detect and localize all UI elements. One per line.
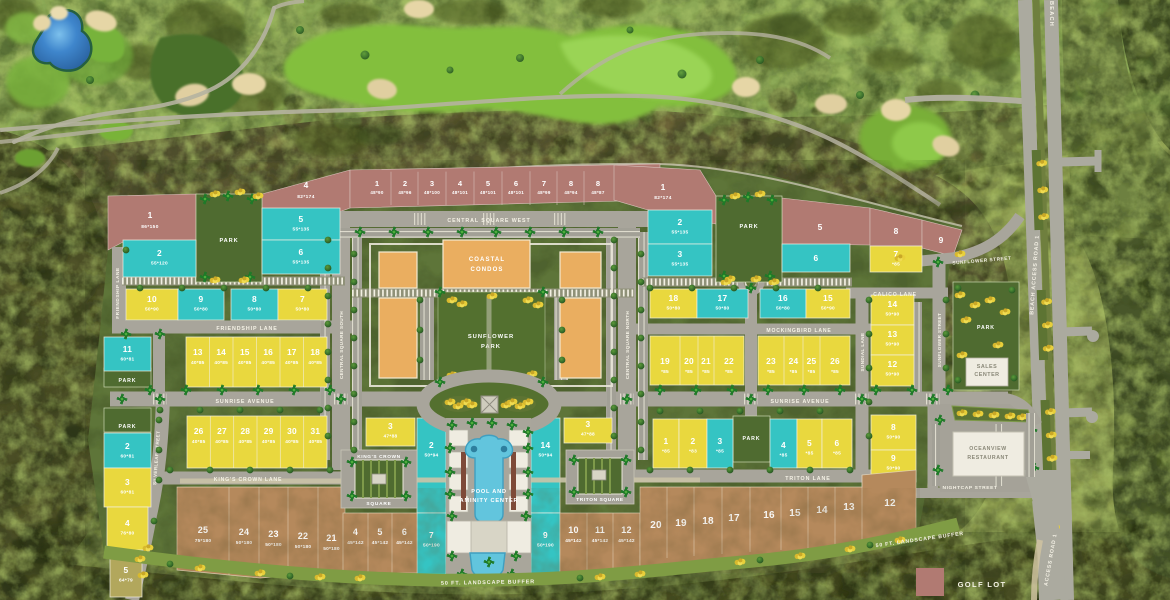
- svg-text:16: 16: [263, 347, 273, 357]
- svg-text:7: 7: [542, 179, 546, 188]
- svg-text:13: 13: [888, 329, 898, 339]
- svg-text:50*90: 50*90: [886, 435, 900, 441]
- svg-text:40*85: 40*85: [192, 439, 206, 445]
- svg-text:PARK: PARK: [119, 378, 137, 384]
- svg-text:17: 17: [287, 347, 297, 357]
- svg-text:8: 8: [891, 422, 896, 432]
- svg-text:3: 3: [125, 477, 130, 487]
- svg-text:*85: *85: [805, 451, 813, 457]
- svg-text:50*90: 50*90: [821, 306, 835, 312]
- svg-text:RESTAURANT: RESTAURANT: [967, 455, 1009, 461]
- svg-text:27: 27: [217, 426, 227, 436]
- svg-text:55*135: 55*135: [671, 262, 688, 268]
- svg-text:60*81: 60*81: [120, 490, 134, 496]
- svg-text:6: 6: [814, 253, 819, 263]
- svg-text:50*90: 50*90: [145, 307, 159, 313]
- svg-text:*85: *85: [685, 369, 693, 375]
- svg-text:PARK: PARK: [739, 224, 758, 230]
- svg-text:NIGHTCAP STREET: NIGHTCAP STREET: [942, 485, 997, 491]
- svg-text:*85: *85: [831, 369, 839, 375]
- svg-text:CENTRAL SQUARE NORTH: CENTRAL SQUARE NORTH: [625, 311, 630, 380]
- svg-text:40*85: 40*85: [309, 439, 323, 445]
- svg-text:55*135: 55*135: [671, 230, 688, 236]
- svg-text:1: 1: [661, 182, 666, 192]
- svg-text:28: 28: [240, 426, 250, 436]
- svg-text:50*80: 50*80: [295, 307, 309, 313]
- svg-text:3: 3: [430, 179, 434, 188]
- svg-text:CONDOS: CONDOS: [471, 267, 504, 273]
- svg-text:76*80: 76*80: [120, 531, 134, 537]
- svg-text:82*174: 82*174: [654, 195, 672, 201]
- svg-text:CALICO LANE: CALICO LANE: [873, 292, 917, 298]
- svg-text:AMINITY CENTER: AMINITY CENTER: [460, 498, 519, 504]
- svg-text:*85: *85: [833, 451, 841, 457]
- svg-text:8: 8: [569, 179, 573, 188]
- svg-text:26: 26: [830, 356, 840, 366]
- svg-text:*85: *85: [716, 449, 724, 455]
- svg-text:48*90: 48*90: [370, 190, 383, 195]
- svg-text:2: 2: [157, 248, 162, 258]
- svg-text:47*88: 47*88: [581, 432, 595, 438]
- svg-text:PARK: PARK: [119, 424, 137, 430]
- svg-text:13: 13: [193, 347, 203, 357]
- svg-text:*85: *85: [725, 369, 733, 375]
- svg-text:40*85: 40*85: [262, 439, 276, 445]
- svg-text:50*80: 50*80: [776, 306, 790, 312]
- svg-text:9: 9: [939, 235, 944, 245]
- svg-text:23: 23: [766, 356, 776, 366]
- svg-text:9: 9: [891, 453, 896, 463]
- svg-text:CENTRAL SQUARE WEST: CENTRAL SQUARE WEST: [447, 218, 530, 224]
- svg-text:*85: *85: [702, 369, 710, 375]
- svg-text:3: 3: [388, 421, 393, 431]
- svg-text:KING'S CROWN: KING'S CROWN: [357, 454, 401, 460]
- svg-text:50*90: 50*90: [885, 342, 899, 348]
- svg-text:GOLF LOT: GOLF LOT: [958, 580, 1007, 589]
- svg-text:COASTAL: COASTAL: [469, 257, 505, 263]
- svg-text:50*94: 50*94: [538, 453, 552, 459]
- svg-text:12: 12: [888, 359, 898, 369]
- svg-text:5: 5: [299, 214, 304, 224]
- svg-text:40*85: 40*85: [308, 360, 322, 366]
- svg-text:60*81: 60*81: [120, 357, 134, 363]
- svg-text:4: 4: [304, 180, 309, 190]
- svg-text:5: 5: [807, 438, 812, 448]
- svg-text:SUNRISE AVENUE: SUNRISE AVENUE: [770, 399, 829, 405]
- svg-text:*85: *85: [790, 369, 798, 375]
- svg-text:*85: *85: [661, 369, 669, 375]
- svg-text:8: 8: [894, 226, 899, 236]
- svg-text:48*100: 48*100: [424, 190, 440, 195]
- svg-text:4: 4: [125, 518, 130, 528]
- svg-text:15: 15: [240, 347, 250, 357]
- svg-text:26: 26: [194, 426, 204, 436]
- svg-text:KING'S CROWN LANE: KING'S CROWN LANE: [214, 477, 282, 483]
- svg-text:8: 8: [252, 294, 257, 304]
- svg-text:4: 4: [781, 440, 786, 450]
- svg-text:21: 21: [701, 356, 711, 366]
- svg-text:40*85: 40*85: [215, 439, 229, 445]
- svg-text:6: 6: [835, 438, 840, 448]
- svg-text:48*99: 48*99: [537, 190, 550, 195]
- svg-text:48*101: 48*101: [480, 190, 496, 195]
- svg-text:TRITON SQUARE: TRITON SQUARE: [576, 497, 624, 503]
- svg-text:50*94: 50*94: [424, 453, 438, 459]
- svg-text:48*87: 48*87: [591, 190, 604, 195]
- svg-text:40*85: 40*85: [238, 360, 252, 366]
- svg-text:19: 19: [660, 356, 670, 366]
- svg-text:2: 2: [678, 217, 683, 227]
- svg-text:SQUARE: SQUARE: [366, 501, 391, 507]
- svg-text:30: 30: [287, 426, 297, 436]
- svg-text:3: 3: [586, 419, 591, 429]
- svg-text:50*80: 50*80: [715, 306, 729, 312]
- svg-text:CENTRAL SQUARE SOUTH: CENTRAL SQUARE SOUTH: [339, 311, 344, 379]
- svg-text:*85: *85: [662, 449, 670, 455]
- svg-text:14: 14: [216, 347, 226, 357]
- svg-text:BEACH: BEACH: [1048, 1, 1054, 27]
- svg-text:25: 25: [807, 356, 817, 366]
- svg-text:10: 10: [147, 294, 157, 304]
- svg-text:48*94: 48*94: [564, 190, 577, 195]
- svg-text:40*85: 40*85: [261, 360, 275, 366]
- svg-text:15: 15: [823, 293, 833, 303]
- svg-text:1: 1: [148, 210, 153, 220]
- svg-text:FRIENDSHIP LANE: FRIENDSHIP LANE: [115, 267, 120, 318]
- svg-text:50*80: 50*80: [194, 307, 208, 313]
- svg-text:1: 1: [664, 436, 669, 446]
- svg-text:*85: *85: [892, 262, 900, 268]
- svg-text:PARK: PARK: [743, 436, 761, 442]
- svg-text:*83: *83: [689, 449, 697, 455]
- svg-text:40*85: 40*85: [214, 360, 228, 366]
- svg-text:17: 17: [718, 293, 728, 303]
- svg-text:50*90: 50*90: [885, 372, 899, 378]
- svg-text:55*135: 55*135: [292, 260, 309, 266]
- svg-text:14: 14: [541, 440, 551, 450]
- svg-text:5: 5: [818, 222, 823, 232]
- svg-text:50*90: 50*90: [885, 312, 899, 318]
- svg-text:8: 8: [596, 179, 600, 188]
- svg-text:50*80: 50*80: [247, 307, 261, 313]
- svg-text:31: 31: [311, 426, 321, 436]
- svg-text:OCEANVIEW: OCEANVIEW: [969, 446, 1006, 452]
- svg-text:FRIENDSHIP LANE: FRIENDSHIP LANE: [216, 326, 277, 332]
- svg-text:POOL AND: POOL AND: [471, 489, 507, 495]
- svg-text:11: 11: [123, 344, 132, 354]
- svg-text:60*81: 60*81: [120, 454, 134, 460]
- svg-text:55*120: 55*120: [151, 261, 168, 267]
- svg-text:SUNDIAL LANE: SUNDIAL LANE: [860, 333, 865, 372]
- svg-text:55*135: 55*135: [292, 227, 309, 233]
- svg-text:3: 3: [678, 249, 683, 259]
- svg-text:16: 16: [778, 293, 788, 303]
- svg-text:18: 18: [669, 293, 679, 303]
- svg-text:29: 29: [264, 426, 274, 436]
- svg-text:6: 6: [299, 247, 304, 257]
- svg-text:2: 2: [429, 440, 434, 450]
- svg-text:PARK: PARK: [219, 238, 238, 244]
- svg-text:24: 24: [789, 356, 799, 366]
- svg-text:2: 2: [403, 179, 407, 188]
- svg-text:22: 22: [724, 356, 734, 366]
- svg-text:20: 20: [684, 356, 694, 366]
- svg-text:82*174: 82*174: [297, 194, 315, 200]
- svg-text:48*96: 48*96: [398, 190, 411, 195]
- svg-text:SUNRISE AVENUE: SUNRISE AVENUE: [215, 399, 274, 405]
- svg-text:40*85: 40*85: [285, 439, 299, 445]
- svg-text:48*101: 48*101: [452, 190, 468, 195]
- svg-text:*85: *85: [767, 369, 775, 375]
- svg-text:TRITON LANE: TRITON LANE: [785, 476, 830, 482]
- svg-text:18: 18: [310, 347, 320, 357]
- svg-text:40*85: 40*85: [191, 360, 205, 366]
- svg-text:40*85: 40*85: [285, 360, 299, 366]
- svg-text:*85: *85: [779, 453, 787, 459]
- svg-text:SALES: SALES: [977, 364, 997, 370]
- svg-text:86*150: 86*150: [141, 224, 159, 230]
- svg-text:*85: *85: [808, 369, 816, 375]
- svg-text:2: 2: [125, 441, 130, 451]
- svg-text:MOCKINGBIRD LANE: MOCKINGBIRD LANE: [766, 328, 831, 334]
- svg-text:3: 3: [718, 436, 723, 446]
- svg-text:6: 6: [514, 179, 518, 188]
- svg-text:9: 9: [199, 294, 204, 304]
- svg-text:50*80: 50*80: [666, 306, 680, 312]
- svg-text:7: 7: [300, 294, 305, 304]
- svg-text:2: 2: [691, 436, 696, 446]
- svg-text:50*90: 50*90: [886, 466, 900, 472]
- svg-text:64*79: 64*79: [119, 578, 133, 584]
- svg-text:48*101: 48*101: [508, 190, 524, 195]
- svg-text:47*88: 47*88: [383, 434, 397, 440]
- svg-text:PARK: PARK: [977, 325, 995, 331]
- svg-text:SUNFLOWER STREET: SUNFLOWER STREET: [937, 313, 942, 367]
- svg-text:5: 5: [124, 565, 129, 575]
- svg-text:CENTER: CENTER: [974, 372, 999, 378]
- svg-text:40*85: 40*85: [239, 439, 253, 445]
- svg-text:14: 14: [888, 299, 898, 309]
